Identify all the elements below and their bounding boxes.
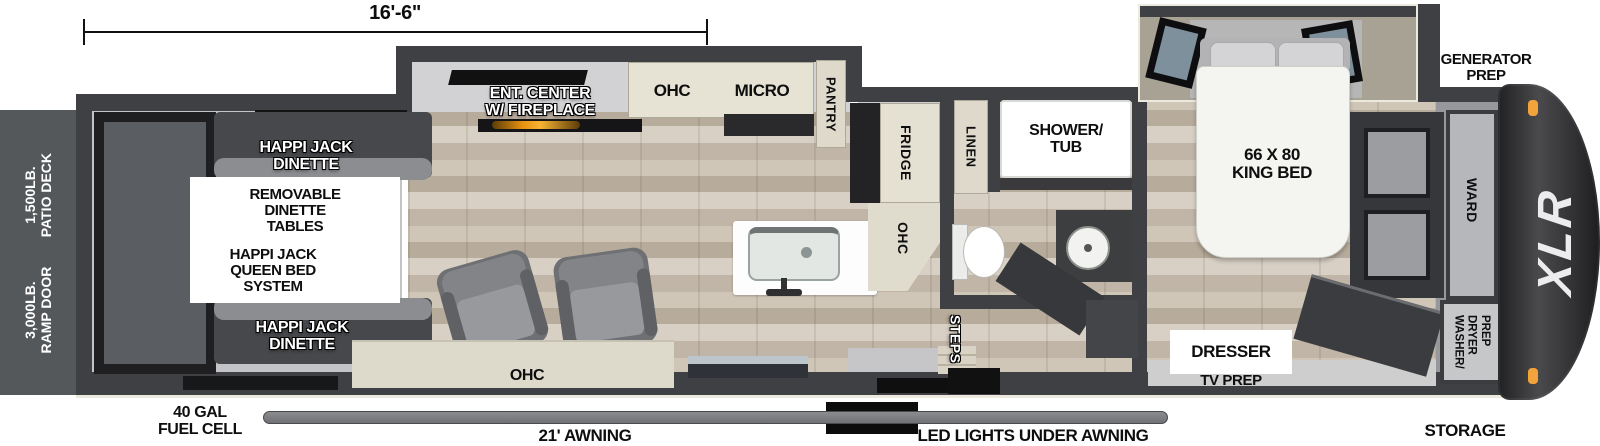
awning-bar bbox=[263, 411, 1168, 424]
dimension-label: 16'-6" bbox=[320, 2, 470, 26]
queen-bed-system-label: HAPPI JACK QUEEN BED SYSTEM bbox=[190, 242, 356, 300]
sink-drain bbox=[801, 247, 812, 258]
dimension-line bbox=[83, 31, 708, 33]
wardrobe-door-top bbox=[1364, 128, 1430, 198]
slideout-window-left-pane bbox=[1154, 26, 1199, 81]
shower-ledge bbox=[1000, 178, 1132, 190]
ohc-lower-label: OHC bbox=[495, 366, 559, 386]
dimension-tick-left bbox=[83, 19, 85, 45]
vanity-drain bbox=[1084, 244, 1092, 252]
marker-light-bottom bbox=[1528, 368, 1538, 384]
shower-tub-label: SHOWER/ TUB bbox=[1004, 118, 1128, 162]
dinette-top-label: HAPPI JACK DINETTE bbox=[216, 136, 396, 178]
kitchen-bottom-window bbox=[688, 364, 808, 378]
washer-dryer-label: WASHER/ DRYER PREP bbox=[1451, 315, 1491, 369]
removable-tables-label: REMOVABLE DINETTE TABLES bbox=[195, 182, 395, 240]
island-sink bbox=[748, 227, 840, 281]
wall-step-right bbox=[846, 46, 862, 102]
hall-floor-strip bbox=[848, 348, 940, 372]
garage-bottom-window bbox=[183, 376, 338, 390]
ent-center-label: ENT. CENTER W/ FIREPLACE bbox=[455, 83, 625, 123]
wall-linen-divider bbox=[988, 100, 1000, 192]
brand-logo: XLR bbox=[1527, 186, 1582, 299]
half-wall bbox=[1086, 300, 1138, 358]
wall-left bbox=[76, 94, 92, 395]
dimension-tick-right bbox=[706, 19, 708, 45]
dresser-label: DRESSER bbox=[1172, 340, 1290, 364]
marker-light-top bbox=[1528, 100, 1538, 116]
steps-label: STEPS bbox=[948, 315, 963, 363]
wall-garage-top bbox=[76, 94, 406, 111]
recliner-right bbox=[552, 246, 659, 354]
ward-label: WARD bbox=[1464, 178, 1480, 223]
micro-label: MICRO bbox=[716, 79, 808, 103]
ramp-door-label: 3,000LB. RAMP DOOR bbox=[22, 250, 54, 370]
floorplan-canvas: 16'-6" 1,500LB. PATIO DECK 3,000LB. RAMP… bbox=[0, 0, 1600, 446]
patio-deck-label: 1,500LB. PATIO DECK bbox=[22, 135, 54, 255]
linen-label: LINEN bbox=[964, 126, 979, 168]
steps-label-wrap: STEPS bbox=[944, 302, 966, 376]
washer-dryer-label-wrap: WASHER/ DRYER PREP bbox=[1442, 302, 1500, 382]
ohc-top-label: OHC bbox=[640, 79, 704, 103]
linen-label-wrap: LINEN bbox=[958, 104, 984, 190]
fridge-label: FRIDGE bbox=[898, 125, 914, 181]
wall-living-top bbox=[396, 46, 852, 62]
recliner-right-seat bbox=[569, 281, 645, 343]
toilet-bowl bbox=[963, 226, 1005, 278]
kitchen-ohc-label: OHC bbox=[895, 222, 911, 255]
storage-label: STORAGE bbox=[1398, 420, 1532, 442]
kitchen-ohc-label-wrap: OHC bbox=[892, 206, 914, 270]
led-lights-label: LED LIGHTS UNDER AWNING bbox=[906, 426, 1160, 446]
wall-step-left bbox=[396, 46, 412, 112]
generator-prep-label: GENERATOR PREP bbox=[1424, 48, 1548, 88]
pantry-label-wrap: PANTRY bbox=[818, 62, 844, 146]
wall-bottom-trim bbox=[76, 395, 1508, 398]
sink-faucet-handle bbox=[766, 289, 802, 296]
fridge-body bbox=[850, 103, 880, 203]
cooktop bbox=[724, 114, 814, 136]
awning-label: 21' AWNING bbox=[518, 426, 652, 446]
king-bed-label: 66 X 80 KING BED bbox=[1200, 142, 1344, 186]
tv-prep-label: TV PREP bbox=[1172, 372, 1290, 390]
wardrobe-door-bottom bbox=[1364, 210, 1430, 280]
brand-logo-wrap: XLR bbox=[1480, 212, 1600, 272]
pantry-label: PANTRY bbox=[824, 77, 839, 132]
fuel-cell-label: 40 GAL FUEL CELL bbox=[140, 402, 260, 442]
fridge-label-wrap: FRIDGE bbox=[895, 108, 917, 198]
